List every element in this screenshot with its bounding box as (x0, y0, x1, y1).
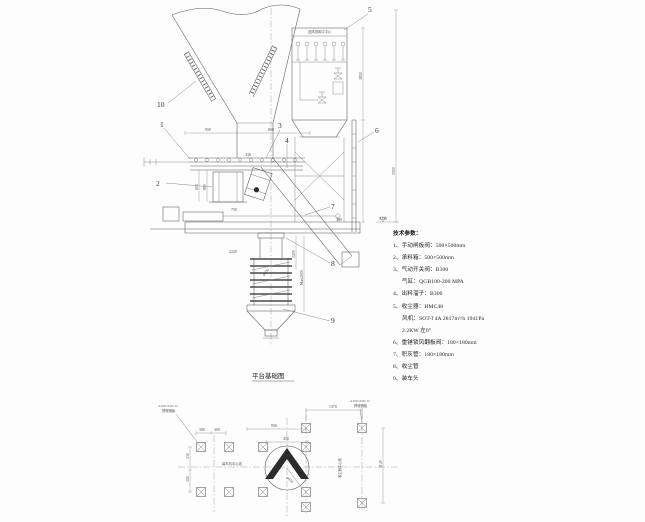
collector-piping (300, 62, 343, 103)
part-label-6: 6 (375, 126, 379, 135)
tech-param-line: 9、装车头 (393, 373, 558, 385)
collector-trestle (295, 137, 344, 222)
tech-param-line: 风机：SOT-Ⅰ 4A 2817m³/h 1941Pa (393, 313, 558, 325)
filter-bags (296, 42, 345, 60)
dim-box-bottom: 750 (231, 208, 237, 212)
part-label-5: 5 (368, 5, 372, 14)
centerline-label-vertical: 收尘器中心线 (337, 458, 342, 478)
part-label-9: 9 (331, 316, 335, 325)
centerline-label-horizontal: 装车机中心线 (222, 461, 242, 466)
tech-param-line: 6、重锤锁风翻板阀：180×180mm (393, 337, 558, 349)
tech-param-line: 2.2KW 左0° (393, 325, 558, 337)
dim-box-left-inner: 600 (195, 184, 199, 190)
dim-col-spacing-1: 300 (199, 428, 205, 432)
dim-pipe-top: 2220 (229, 250, 237, 254)
tech-param-line: 4、出料溜子：B300 (393, 288, 558, 300)
support-column (352, 120, 356, 232)
collector-hopper (292, 120, 347, 137)
dim-left-height-2: 150 (186, 476, 190, 482)
collector-top-label: 送风排风口中心 (308, 29, 332, 34)
hopper (172, 5, 300, 158)
dim-top-left: 950 (205, 128, 211, 132)
dim-pipe-travel: Max2000 (300, 270, 304, 285)
dim-top-right: 800 (268, 128, 274, 132)
note-left-line1: 4-250×250×12 (158, 404, 178, 408)
dim-right-span: 1370 (329, 405, 337, 409)
tech-params-title: 技术参数： (393, 228, 558, 240)
dim-col-spacing-2: 300 (214, 428, 220, 432)
dim-pipe-upper: 1200 (292, 250, 296, 258)
tech-params-list: 技术参数： 1、手动闸板阀：500×500mm 2、承料箱：500×500mm … (393, 228, 558, 385)
tech-param-line: 气缸：QGB100-200 MPA (393, 276, 558, 288)
plan-centerlines (178, 412, 398, 516)
note-right-line2: 预埋钢板 (354, 403, 368, 408)
note-right-line1: 4-250×250×12 (350, 399, 370, 403)
flange-bolts (195, 159, 297, 162)
tech-param-line: 7、积灰管：180×180mm (393, 349, 558, 361)
dim-chevron-width: 450 (283, 437, 289, 441)
note-left: 4-250×250×12 预埋钢板 (158, 404, 197, 442)
dim-center-offset: 950 (271, 424, 277, 428)
dim-chute-width: 330 (245, 153, 251, 157)
tech-param-line: 5、收尘器：HMC48 (393, 301, 558, 313)
drawing-canvas: 950 800 600 800 330 750 390 1850 3500 22… (0, 0, 645, 522)
vibrator-brace-right (249, 45, 277, 97)
note-right: 4-250×250×12 预埋钢板 (350, 399, 370, 423)
tech-param-line: 2、承料箱：500×500mm (393, 252, 558, 264)
dim-left-height-1: 130 (186, 453, 190, 459)
platform-level-mark: 5.00 (379, 216, 387, 221)
dim-box-left-outer: 800 (203, 184, 207, 190)
platform (150, 222, 360, 233)
tech-param-line: 8、收尘管 (393, 361, 558, 373)
part-label-4: 4 (285, 136, 289, 145)
tech-param-line: 3、气动开关阀：B300 (393, 264, 558, 276)
part-label-8: 8 (331, 259, 335, 268)
plan-view: 平台基础图 (158, 371, 398, 516)
dim-right-small: 390 (336, 218, 342, 222)
note-left-line2: 预埋钢板 (162, 408, 176, 413)
tech-param-line: 1、手动闸板阀：500×500mm (393, 240, 558, 252)
discharge-chute (261, 158, 359, 267)
dim-right-height: 1140 (379, 460, 383, 468)
feed-box (209, 172, 247, 202)
pneumatic-valve (244, 168, 272, 201)
part-label-7: 7 (331, 202, 335, 211)
vibrator-brace-left (184, 51, 216, 102)
part-label-2: 2 (156, 179, 160, 188)
dim-collector-height: 1850 (359, 72, 363, 80)
dim-column-height: 3500 (392, 167, 396, 175)
part-label-1: 1 (160, 120, 164, 129)
hole-diameter: φ650 (285, 476, 294, 484)
plan-title: 平台基础图 (252, 371, 285, 380)
part-label-3: 3 (278, 121, 282, 130)
dust-collector (292, 28, 347, 137)
winch (163, 207, 340, 222)
elevation-view: 950 800 600 800 330 750 390 1850 3500 22… (144, 5, 399, 346)
part-label-10: 10 (157, 100, 165, 109)
